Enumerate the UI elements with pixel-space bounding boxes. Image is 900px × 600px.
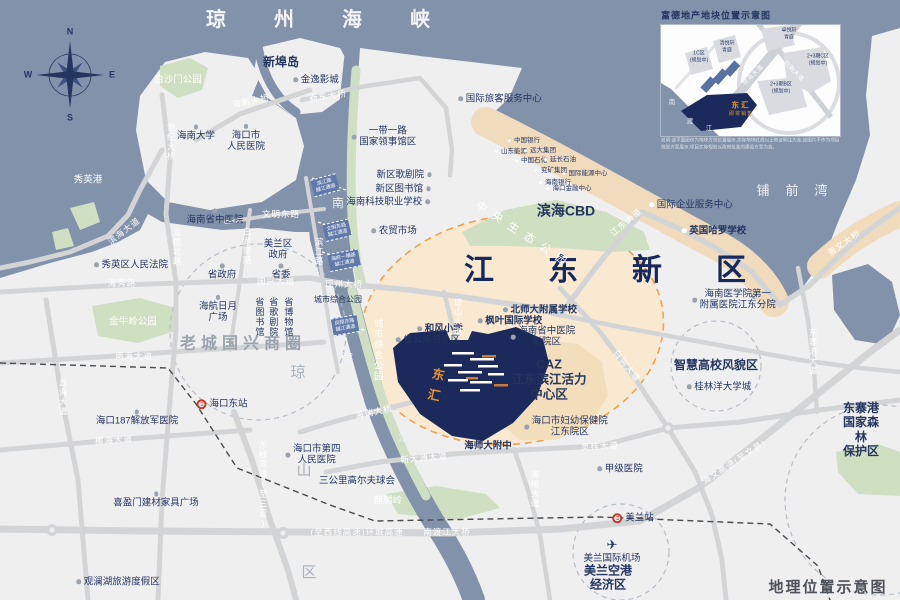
location-map: 琼州海峡铺前湾秀英港南渡江江东新区老城国兴商圈滨海CBDCAZ 江东滨江活力 中… xyxy=(0,0,900,600)
inset-canvas xyxy=(661,25,840,136)
inset-map xyxy=(661,25,840,136)
